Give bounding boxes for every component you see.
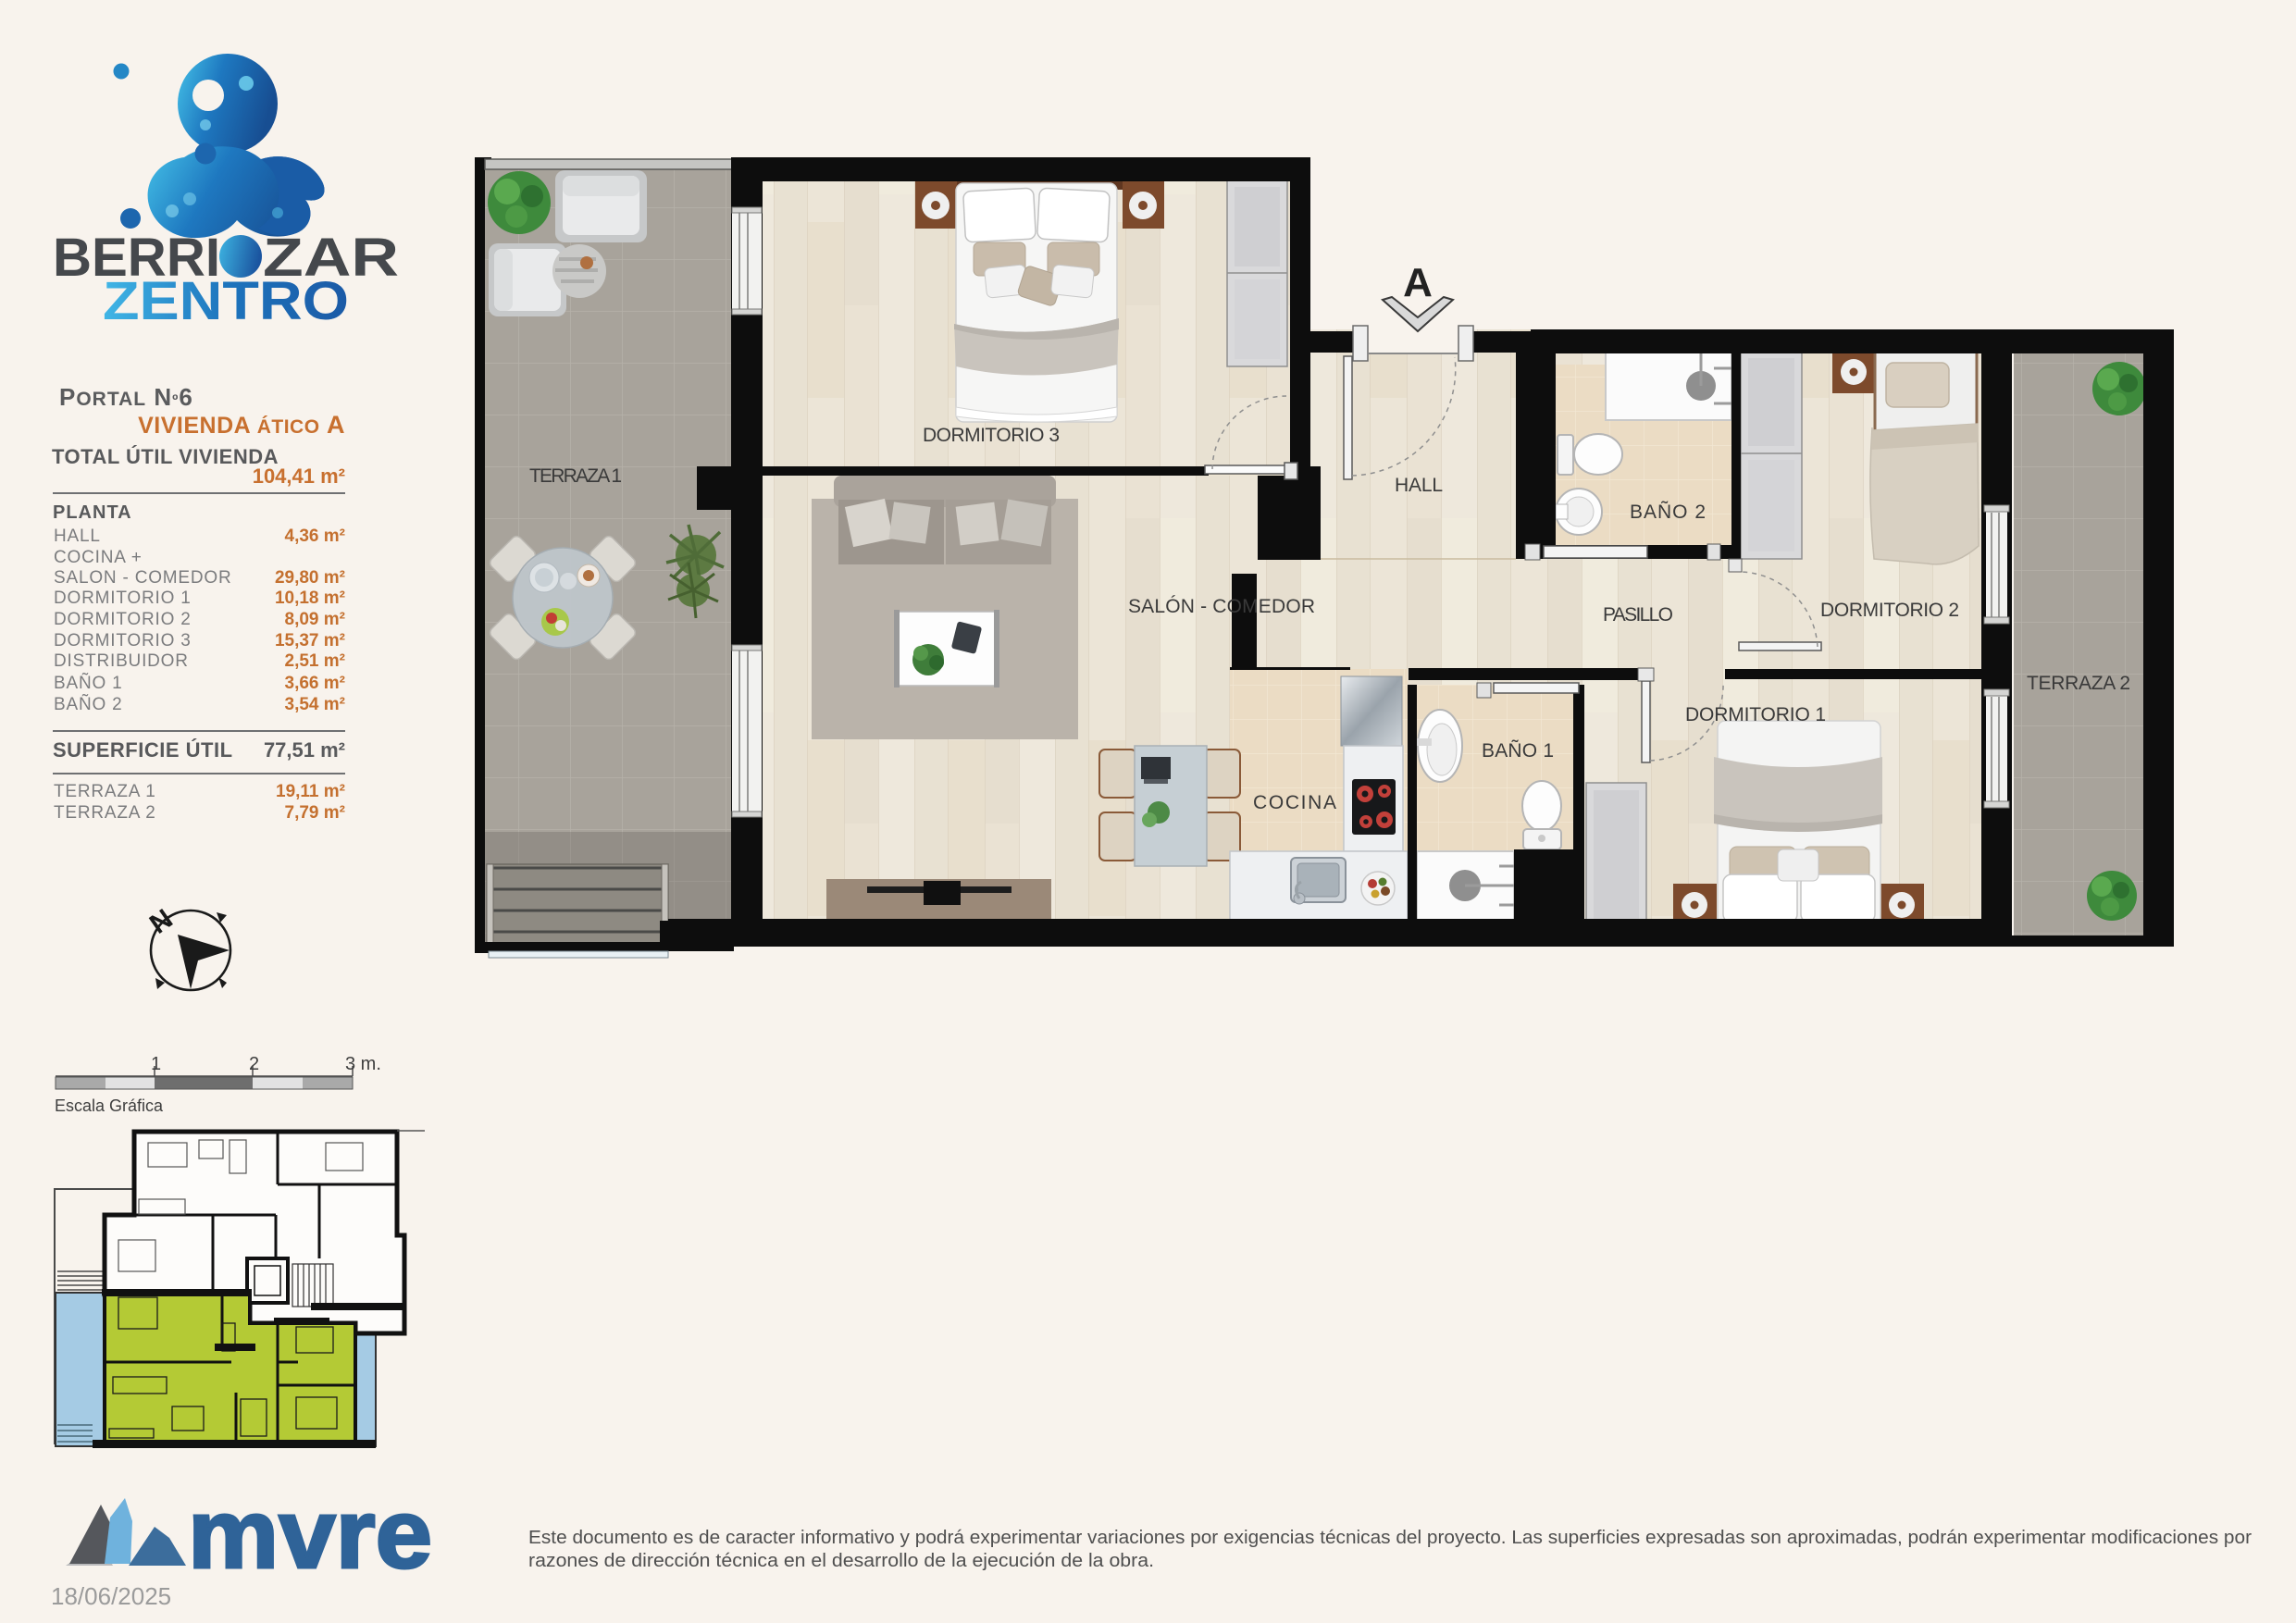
svg-text:SALÓN - COMEDOR: SALÓN - COMEDOR <box>1128 596 1315 617</box>
svg-text:SALON - COMEDOR: SALON - COMEDOR <box>54 568 232 588</box>
svg-text:BAÑO 2: BAÑO 2 <box>1630 501 1706 523</box>
svg-text:BAÑO 1: BAÑO 1 <box>1482 739 1554 762</box>
svg-text:BAÑO 2: BAÑO 2 <box>54 694 123 714</box>
svg-text:HALL: HALL <box>54 527 101 546</box>
svg-text:TOTAL ÚTIL VIVIENDA: TOTAL ÚTIL VIVIENDA <box>52 445 279 468</box>
svg-text:3,66 m²: 3,66 m² <box>285 674 345 693</box>
svg-text:4,36 m²: 4,36 m² <box>285 527 345 546</box>
svg-text:8,09 m²: 8,09 m² <box>285 610 345 629</box>
svg-text:PASILLO: PASILLO <box>1603 604 1673 626</box>
svg-text:COCINA: COCINA <box>1253 792 1336 813</box>
svg-text:DORMITORIO 3: DORMITORIO 3 <box>54 631 192 650</box>
svg-text:3,54 m²: 3,54 m² <box>285 695 345 714</box>
svg-text:DORMITORIO 1: DORMITORIO 1 <box>54 588 192 608</box>
svg-text:ZENTRO: ZENTRO <box>103 271 349 331</box>
svg-text:18/06/2025: 18/06/2025 <box>51 1582 171 1610</box>
svg-text:15,37 m²: 15,37 m² <box>275 631 345 650</box>
svg-text:3 m.: 3 m. <box>345 1054 381 1074</box>
svg-text:DORMITORIO 3: DORMITORIO 3 <box>923 425 1060 446</box>
svg-text:DORMITORIO 2: DORMITORIO 2 <box>1820 600 1959 621</box>
svg-text:104,41 m²: 104,41 m² <box>253 465 345 488</box>
svg-text:BAÑO 1: BAÑO 1 <box>54 673 123 693</box>
svg-text:29,80 m²: 29,80 m² <box>275 568 345 588</box>
svg-text:A: A <box>1403 260 1433 305</box>
svg-text:2: 2 <box>249 1054 259 1074</box>
svg-text:SUPERFICIE ÚTIL: SUPERFICIE ÚTIL <box>53 738 233 762</box>
svg-text:2,51 m²: 2,51 m² <box>285 651 345 671</box>
svg-text:10,18 m²: 10,18 m² <box>275 588 345 608</box>
svg-text:TERRAZA 1: TERRAZA 1 <box>54 782 156 801</box>
svg-text:COCINA +: COCINA + <box>54 548 143 567</box>
svg-text:PLANTA: PLANTA <box>53 502 132 523</box>
svg-text:razones de dirección técnica e: razones de dirección técnica en el desar… <box>528 1551 1154 1571</box>
svg-text:Escala Gráfica: Escala Gráfica <box>55 1096 164 1115</box>
svg-text:TERRAZA 2: TERRAZA 2 <box>54 803 156 823</box>
svg-text:HALL: HALL <box>1395 475 1443 496</box>
svg-text:TERRAZA 1: TERRAZA 1 <box>529 465 622 487</box>
svg-text:77,51 m²: 77,51 m² <box>264 738 345 762</box>
svg-text:DORMITORIO 2: DORMITORIO 2 <box>54 610 192 629</box>
svg-text:TERRAZA 2: TERRAZA 2 <box>2027 673 2130 694</box>
svg-text:mvre: mvre <box>188 1480 432 1589</box>
svg-text:7,79 m²: 7,79 m² <box>285 803 345 823</box>
svg-text:Este documento es de caracter: Este documento es de caracter informativ… <box>528 1528 2252 1548</box>
svg-text:1: 1 <box>151 1054 161 1074</box>
svg-text:DISTRIBUIDOR: DISTRIBUIDOR <box>54 651 189 671</box>
svg-text:DORMITORIO 1: DORMITORIO 1 <box>1685 704 1826 725</box>
svg-text:19,11 m²: 19,11 m² <box>276 782 345 801</box>
